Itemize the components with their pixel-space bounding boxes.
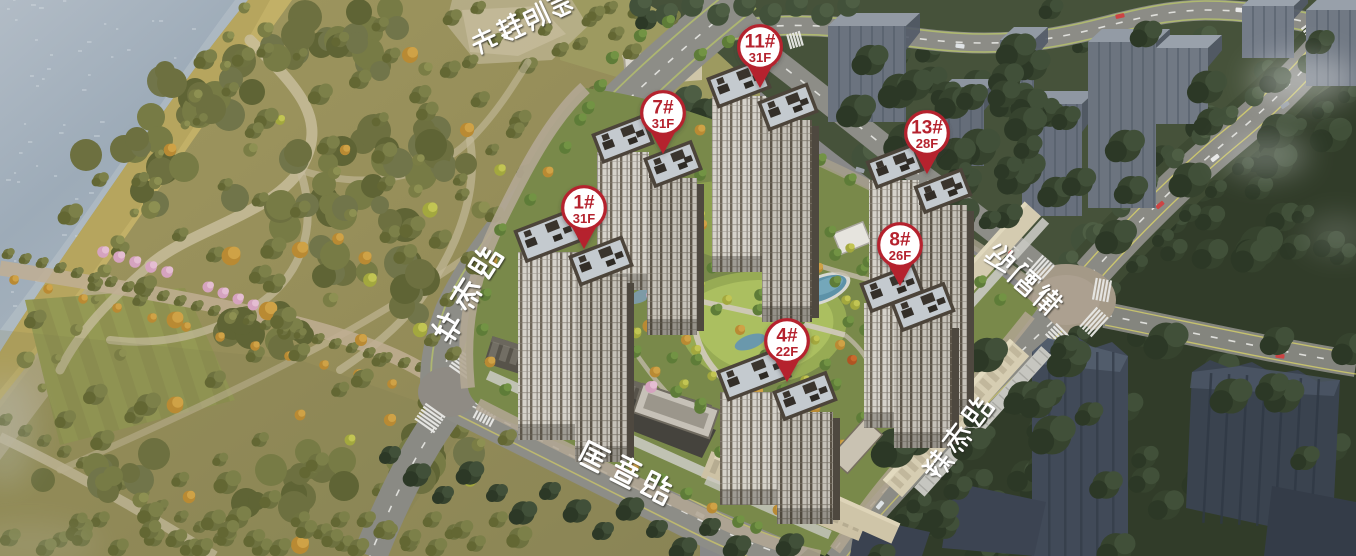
svg-text:31F: 31F xyxy=(573,211,595,226)
svg-text:31F: 31F xyxy=(749,50,771,65)
svg-text:26F: 26F xyxy=(889,248,911,263)
svg-text:28F: 28F xyxy=(916,136,938,151)
svg-text:31F: 31F xyxy=(652,116,674,131)
svg-text:22F: 22F xyxy=(776,344,798,359)
